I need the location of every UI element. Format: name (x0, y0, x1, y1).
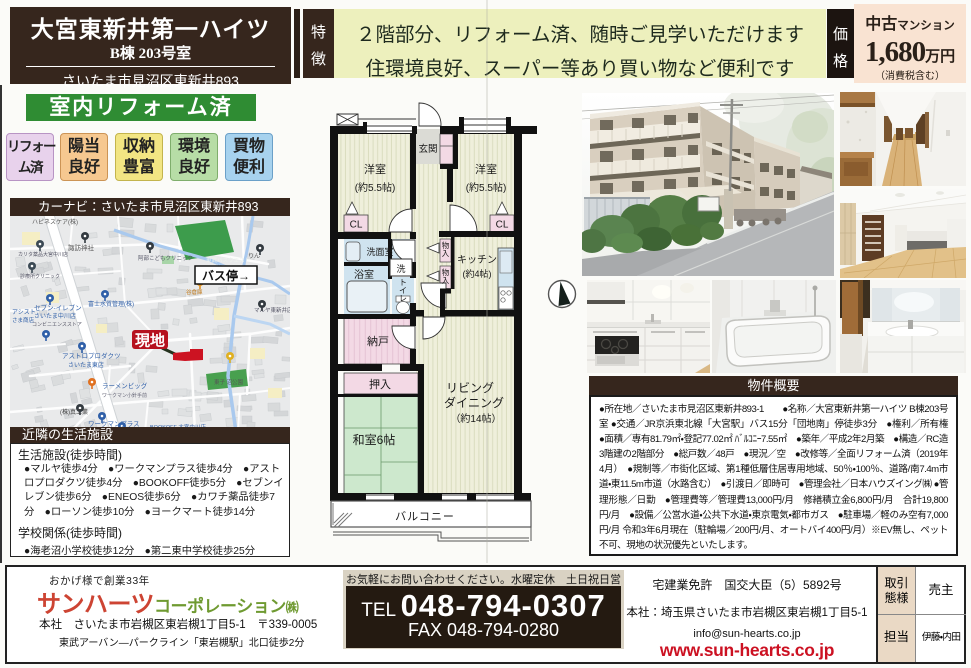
svg-text:（約14帖）: （約14帖） (450, 412, 501, 425)
svg-text:さいたま東店: さいたま東店 (68, 361, 104, 369)
svg-text:診療所クリニック: 診療所クリニック (20, 273, 60, 280)
svg-text:納戸: 納戸 (367, 334, 389, 348)
svg-text:CL: CL (350, 220, 363, 231)
svg-text:和室6帖: 和室6帖 (353, 432, 396, 447)
svg-text:キッチン: キッチン (457, 254, 497, 266)
svg-text:(株)真工業: (株)真工業 (60, 408, 88, 416)
svg-text:アシスト: アシスト (12, 309, 36, 316)
svg-text:ハピネスケア(株): ハピネスケア(株) (32, 218, 78, 226)
svg-text:ワークマン小針手前: ワークマン小針手前 (102, 392, 147, 399)
svg-text:富士水質管理(株): 富士水質管理(株) (88, 300, 134, 308)
svg-text:洗: 洗 (396, 263, 405, 274)
svg-text:東武バスウエスト: 東武バスウエスト (206, 256, 250, 264)
svg-text:押入: 押入 (369, 377, 391, 391)
svg-text:ラーメンビッグ: ラーメンビッグ (102, 381, 148, 390)
svg-text:物入: 物入 (442, 240, 450, 258)
svg-text:東子 沼公園: 東子 沼公園 (214, 378, 244, 386)
svg-text:カリタ薬品大宮中川店: カリタ薬品大宮中川店 (18, 251, 68, 258)
svg-text:浴室: 浴室 (354, 268, 374, 281)
svg-text:バス停→: バス停→ (202, 268, 250, 283)
svg-text:ダイニング: ダイニング (444, 395, 504, 410)
svg-text:現地: 現地 (135, 332, 165, 350)
svg-text:マルヤ東新井店: マルヤ東新井店 (254, 306, 290, 314)
svg-text:谷倉庫: 谷倉庫 (186, 288, 203, 296)
svg-text:コンビニエンスストア: コンビニエンスストア (32, 321, 82, 328)
svg-text:洗面室: 洗面室 (366, 246, 393, 257)
svg-text:物入: 物入 (442, 267, 450, 285)
svg-text:洋室: 洋室 (364, 162, 386, 176)
svg-text:諏訪神社: 諏訪神社 (68, 243, 95, 252)
svg-text:アストロプロダクツ: アストロプロダクツ (62, 351, 121, 360)
svg-text:バルコニー: バルコニー (395, 510, 455, 523)
svg-text:セブン-イレブン: セブン-イレブン (34, 303, 82, 312)
svg-text:玄関: 玄関 (418, 143, 437, 155)
svg-text:トイレ: トイレ (399, 278, 407, 303)
svg-text:(約5.5帖): (約5.5帖) (355, 181, 396, 194)
svg-text:阿部こどもクリニック: 阿部こどもクリニック (138, 254, 193, 262)
svg-text:CL: CL (496, 220, 509, 231)
svg-text:さいたま中川店: さいたま中川店 (34, 312, 76, 320)
svg-text:りん: りん (248, 253, 260, 260)
